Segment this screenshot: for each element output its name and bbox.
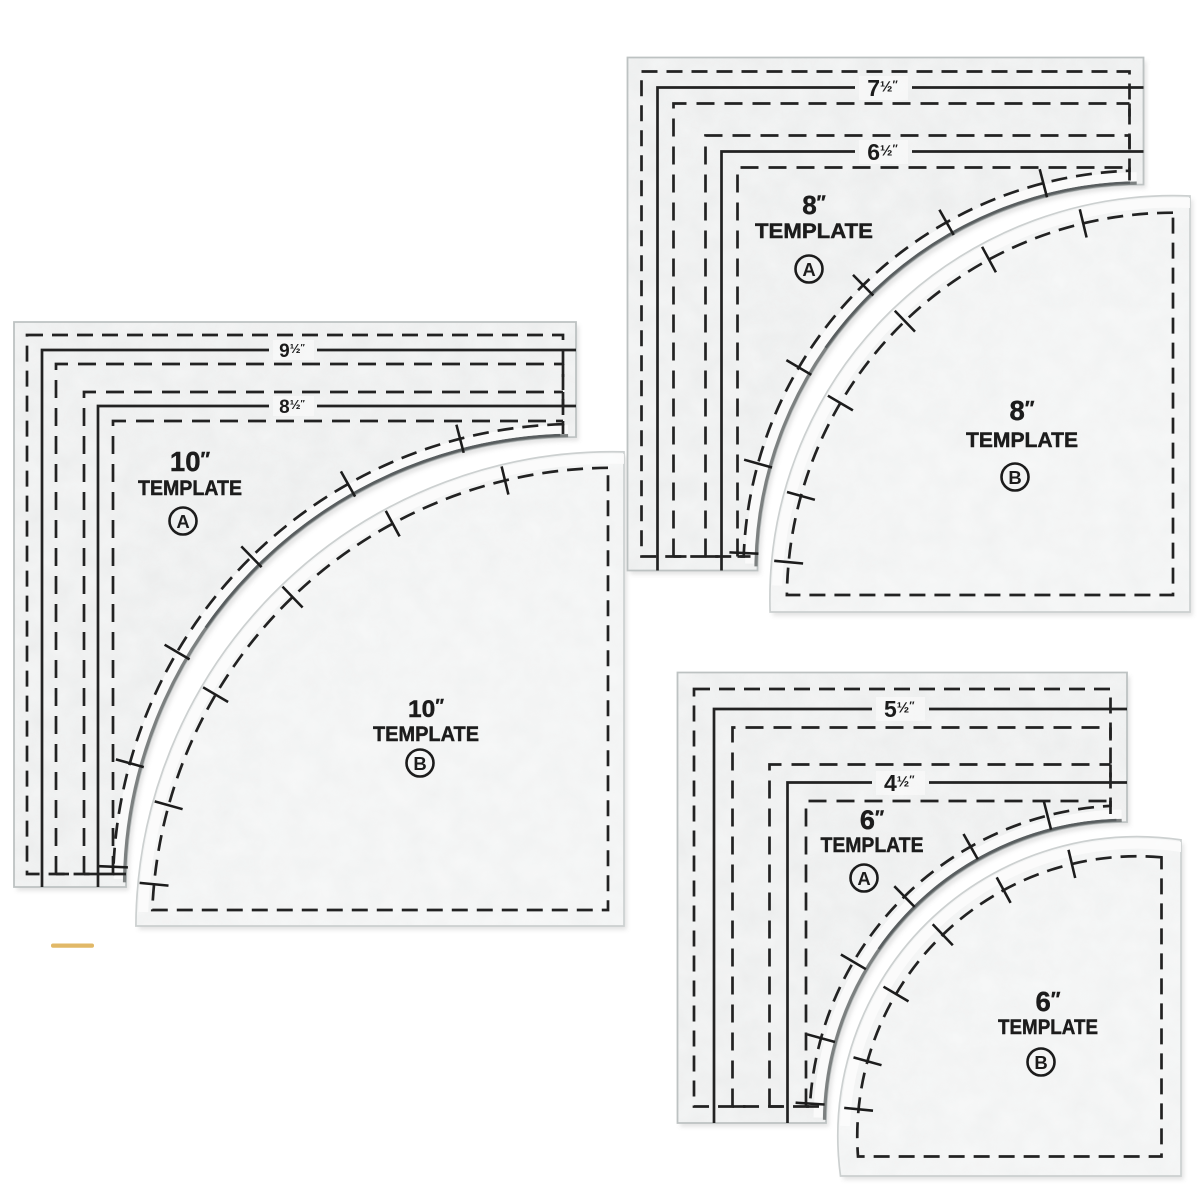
svg-text:TEMPLATE: TEMPLATE [966, 429, 1078, 452]
svg-text:B: B [1034, 1052, 1047, 1073]
svg-text:TEMPLATE: TEMPLATE [138, 477, 242, 500]
svg-text:TEMPLATE: TEMPLATE [755, 220, 873, 243]
svg-text:A: A [176, 511, 189, 532]
svg-text:A: A [802, 259, 815, 280]
svg-text:A: A [857, 868, 870, 889]
svg-text:B: B [1008, 467, 1021, 488]
svg-text:B: B [413, 753, 426, 774]
svg-text:TEMPLATE: TEMPLATE [373, 723, 479, 746]
svg-text:TEMPLATE: TEMPLATE [998, 1016, 1098, 1039]
svg-text:TEMPLATE: TEMPLATE [821, 834, 924, 857]
